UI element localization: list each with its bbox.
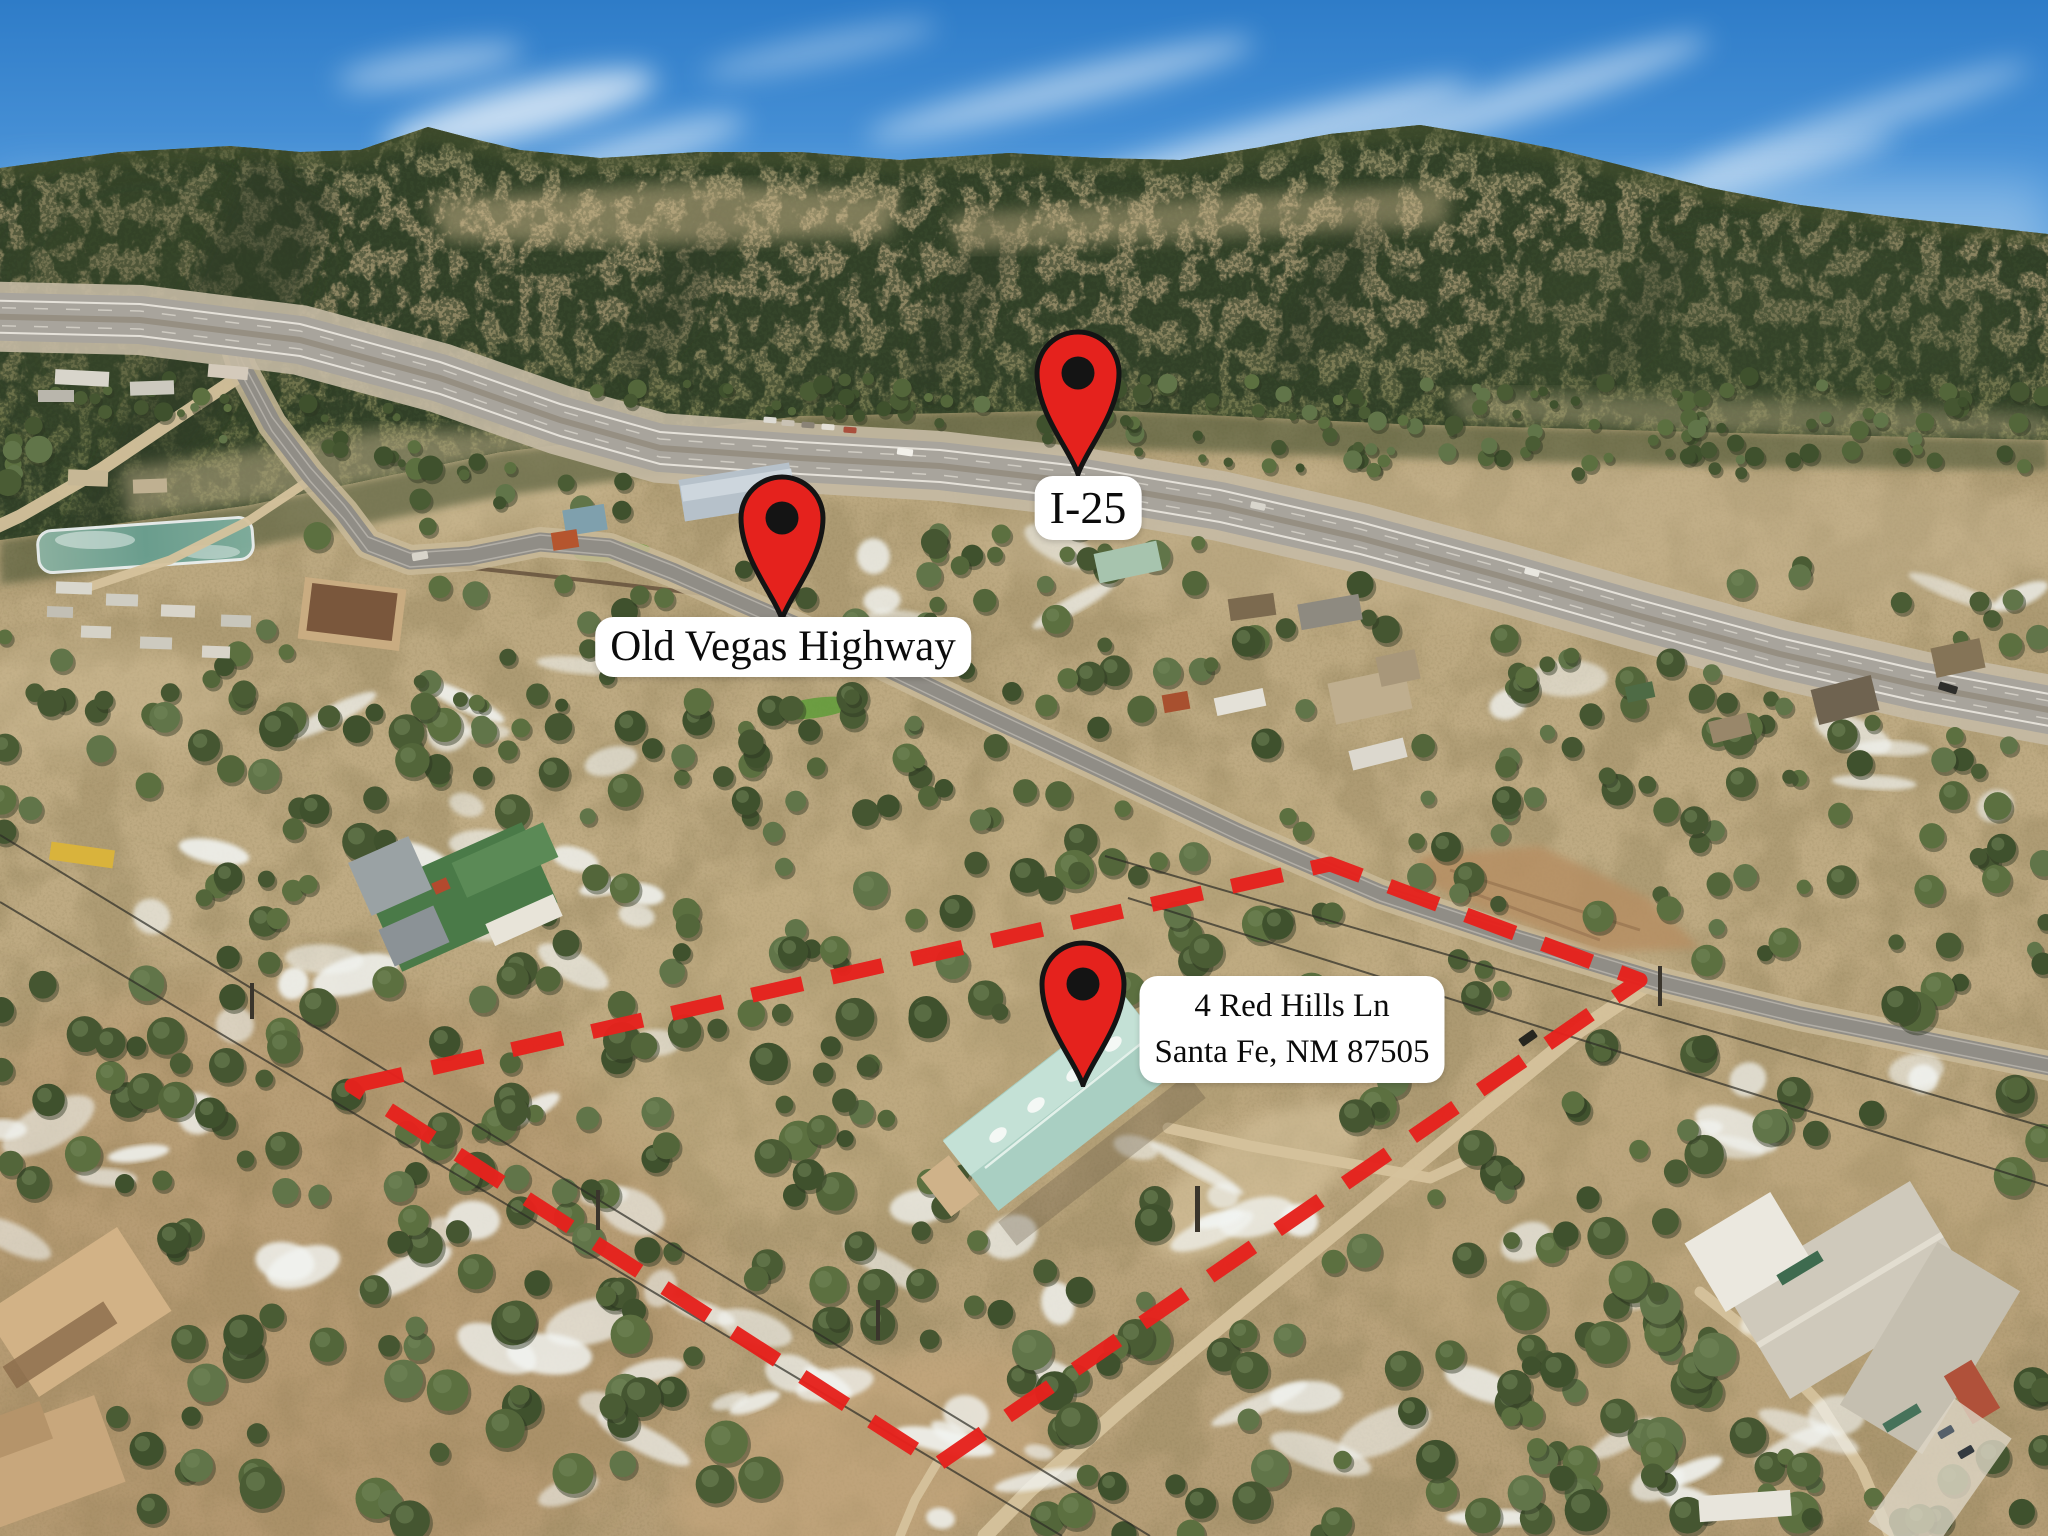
- juniper-tree-highlight: [945, 899, 960, 914]
- juniper-tree-highlight: [627, 1382, 645, 1400]
- juniper-tree: [1497, 384, 1514, 401]
- juniper-tree-highlight: [673, 1019, 688, 1034]
- property-address-label: 4 Red Hills Ln Santa Fe, NM 87505: [1140, 976, 1445, 1083]
- juniper-tree: [2009, 1499, 2035, 1525]
- juniper-tree: [1068, 862, 1087, 881]
- juniper-tree: [912, 1221, 931, 1240]
- juniper-tree: [1204, 657, 1218, 671]
- juniper-tree-highlight: [1605, 1403, 1621, 1419]
- juniper-tree: [1816, 379, 1828, 391]
- juniper-tree: [934, 418, 944, 428]
- building: [140, 636, 172, 649]
- juniper-tree-highlight: [1190, 1492, 1204, 1506]
- building: [221, 614, 251, 627]
- juniper-tree: [2005, 1077, 2028, 1100]
- juniper-tree: [387, 1231, 410, 1254]
- juniper-tree: [1060, 547, 1075, 562]
- juniper-tree: [1038, 876, 1063, 901]
- juniper-tree: [1098, 848, 1126, 876]
- juniper-tree: [1571, 467, 1585, 481]
- juniper-tree: [631, 1033, 657, 1059]
- juniper-tree-highlight: [1123, 1324, 1139, 1340]
- juniper-tree-highlight: [396, 1505, 414, 1523]
- juniper-tree-highlight: [388, 1175, 402, 1189]
- vehicle: [781, 420, 794, 427]
- juniper-tree-highlight: [336, 1083, 350, 1097]
- juniper-tree: [283, 818, 305, 840]
- juniper-tree-highlight: [811, 1119, 824, 1132]
- juniper-tree-highlight: [502, 1305, 520, 1323]
- juniper-tree: [852, 799, 879, 826]
- juniper-tree: [723, 384, 733, 394]
- juniper-tree: [37, 690, 64, 717]
- juniper-tree-highlight: [141, 1497, 155, 1511]
- juniper-tree: [2009, 413, 2029, 433]
- juniper-tree: [924, 393, 933, 402]
- juniper-tree: [1896, 448, 1912, 464]
- juniper-tree: [1576, 1186, 1599, 1209]
- juniper-tree: [1366, 463, 1381, 478]
- juniper-tree: [684, 688, 712, 716]
- juniper-tree-highlight: [1759, 1456, 1773, 1470]
- juniper-tree-highlight: [2033, 1439, 2047, 1453]
- juniper-tree-highlight: [463, 1258, 479, 1274]
- juniper-tree: [920, 1329, 940, 1349]
- juniper-tree: [498, 740, 518, 760]
- juniper-tree: [2010, 382, 2030, 402]
- juniper-tree-highlight: [1104, 659, 1118, 673]
- juniper-tree-highlight: [364, 1279, 377, 1292]
- juniper-tree: [1333, 395, 1343, 405]
- juniper-tree-highlight: [1943, 785, 1956, 798]
- juniper-tree: [115, 1174, 134, 1193]
- juniper-tree: [1891, 592, 1912, 613]
- juniper-tree: [951, 556, 970, 575]
- juniper-tree-highlight: [253, 763, 267, 777]
- juniper-tree-highlight: [99, 1031, 113, 1045]
- juniper-tree: [813, 1062, 834, 1083]
- juniper-tree: [1970, 592, 1990, 612]
- juniper-tree-highlight: [1018, 1335, 1036, 1353]
- juniper-tree: [398, 459, 406, 467]
- juniper-tree: [1066, 1277, 1093, 1304]
- juniper-tree: [813, 375, 832, 394]
- juniper-tree-highlight: [1247, 910, 1264, 927]
- vehicle: [843, 427, 856, 434]
- juniper-tree-highlight: [193, 1368, 210, 1385]
- juniper-tree-highlight: [70, 1140, 86, 1156]
- juniper-tree-highlight: [1463, 1135, 1479, 1151]
- juniper-tree: [707, 1019, 727, 1039]
- juniper-tree-highlight: [1495, 628, 1508, 641]
- juniper-tree-highlight: [100, 1065, 113, 1078]
- juniper-tree: [1689, 684, 1715, 710]
- juniper-tree: [1365, 443, 1377, 455]
- juniper-tree: [1908, 432, 1923, 447]
- juniper-tree: [558, 475, 575, 492]
- juniper-tree: [1716, 423, 1726, 433]
- juniper-tree: [1512, 410, 1521, 419]
- juniper-tree-highlight: [501, 967, 516, 982]
- juniper-tree: [844, 689, 860, 705]
- juniper-tree: [987, 547, 1003, 563]
- juniper-tree-highlight: [616, 1320, 634, 1338]
- juniper-tree-highlight: [1061, 1407, 1080, 1426]
- juniper-tree: [1348, 389, 1363, 404]
- juniper-tree-highlight: [185, 1453, 200, 1468]
- juniper-tree: [237, 1150, 255, 1168]
- juniper-tree: [839, 374, 852, 387]
- juniper-tree: [1997, 445, 2014, 462]
- juniper-tree: [1333, 1451, 1351, 1469]
- juniper-tree: [429, 576, 451, 598]
- juniper-tree-highlight: [1326, 1511, 1340, 1525]
- juniper-tree: [683, 1346, 703, 1366]
- juniper-tree-highlight: [1696, 949, 1710, 963]
- juniper-tree: [929, 597, 944, 612]
- juniper-tree: [1971, 764, 1986, 779]
- juniper-tree-highlight: [501, 1099, 515, 1113]
- juniper-tree: [1360, 610, 1377, 627]
- juniper-tree: [1140, 374, 1151, 385]
- juniper-tree: [1407, 863, 1434, 890]
- juniper-tree: [1562, 737, 1583, 758]
- juniper-tree: [1343, 450, 1362, 469]
- building: [133, 478, 167, 493]
- juniper-tree: [1411, 734, 1435, 758]
- juniper-tree: [1540, 725, 1555, 740]
- juniper-tree-highlight: [265, 715, 281, 731]
- juniper-tree-highlight: [1470, 1502, 1486, 1518]
- juniper-tree: [893, 379, 912, 398]
- building: [130, 380, 174, 396]
- juniper-tree: [671, 744, 695, 768]
- building: [202, 646, 230, 659]
- juniper-tree: [1736, 455, 1746, 465]
- juniper-tree: [333, 442, 349, 458]
- juniper-tree: [1599, 767, 1616, 784]
- juniper-tree: [1481, 438, 1497, 454]
- juniper-tree: [1347, 571, 1374, 598]
- juniper-tree-highlight: [661, 1380, 675, 1394]
- juniper-tree: [1596, 374, 1614, 392]
- juniper-tree: [182, 1407, 201, 1426]
- juniper-tree: [967, 1230, 988, 1251]
- juniper-tree-highlight: [135, 1436, 150, 1451]
- juniper-tree: [1603, 453, 1613, 463]
- juniper-tree: [788, 407, 797, 416]
- juniper-tree: [1318, 417, 1330, 429]
- juniper-tree: [1193, 431, 1203, 441]
- juniper-tree-highlight: [1079, 665, 1092, 678]
- juniper-tree: [1735, 467, 1747, 479]
- juniper-tree-highlight: [1587, 905, 1601, 919]
- juniper-tree-highlight: [500, 799, 516, 815]
- juniper-tree: [1936, 933, 1961, 958]
- juniper-tree: [1782, 770, 1796, 784]
- map-pin-i25: [1028, 326, 1128, 476]
- juniper-tree: [1096, 1352, 1120, 1376]
- juniper-tree: [217, 946, 240, 969]
- building: [38, 390, 74, 402]
- juniper-tree-highlight: [1041, 1376, 1059, 1394]
- juniper-tree: [3, 441, 22, 460]
- juniper-tree-highlight: [1267, 912, 1281, 926]
- juniper-tree: [612, 501, 631, 520]
- juniper-tree: [857, 1056, 877, 1076]
- juniper-tree-highlight: [163, 1086, 179, 1102]
- building: [81, 625, 111, 638]
- juniper-tree: [219, 394, 229, 404]
- juniper-tree: [905, 909, 925, 929]
- juniper-tree-highlight: [154, 706, 168, 720]
- juniper-tree: [1873, 413, 1888, 428]
- juniper-tree-highlight: [849, 1235, 862, 1248]
- juniper-tree-highlight: [1236, 1356, 1253, 1373]
- juniper-tree: [446, 1220, 469, 1243]
- juniper-tree-highlight: [646, 1101, 660, 1115]
- juniper-tree: [1847, 750, 1873, 776]
- juniper-tree-highlight: [1212, 1342, 1227, 1357]
- juniper-tree: [1652, 1208, 1679, 1235]
- juniper-tree-highlight: [1390, 1355, 1406, 1371]
- juniper-tree-highlight: [1571, 1494, 1590, 1513]
- juniper-tree: [469, 986, 496, 1013]
- juniper-tree: [853, 410, 865, 422]
- juniper-tree: [1638, 776, 1656, 794]
- vehicle: [801, 422, 814, 429]
- juniper-tree: [1408, 833, 1425, 850]
- juniper-tree-highlight: [1035, 1506, 1051, 1522]
- juniper-tree: [1302, 405, 1318, 421]
- juniper-tree: [1703, 664, 1721, 682]
- juniper-tree: [1398, 415, 1409, 426]
- juniper-tree: [1491, 824, 1510, 843]
- juniper-tree-highlight: [348, 828, 365, 845]
- juniper-tree: [1709, 919, 1726, 936]
- juniper-tree: [1033, 1259, 1057, 1283]
- juniper-tree: [554, 575, 573, 594]
- juniper-tree: [1087, 717, 1109, 739]
- juniper-tree: [1802, 1508, 1821, 1527]
- juniper-tree-highlight: [1015, 862, 1031, 878]
- juniper-tree-highlight: [229, 1320, 247, 1338]
- juniper-tree: [916, 562, 941, 587]
- juniper-tree: [1819, 411, 1832, 424]
- juniper-tree: [1490, 896, 1506, 912]
- road-label-i25: I-25: [1035, 476, 1142, 540]
- juniper-tree: [738, 1000, 765, 1027]
- juniper-tree-highlight: [1502, 1374, 1517, 1389]
- juniper-tree: [363, 786, 387, 810]
- juniper-tree: [630, 586, 649, 605]
- juniper-tree: [823, 407, 834, 418]
- juniper-tree-highlight: [619, 714, 633, 728]
- juniper-tree: [196, 889, 213, 906]
- juniper-tree: [862, 373, 874, 385]
- juniper-tree: [1653, 797, 1679, 823]
- juniper-tree-highlight: [1986, 868, 1999, 881]
- juniper-tree: [94, 691, 113, 710]
- road-label-old-vegas-highway-text: Old Vegas Highway: [610, 620, 956, 674]
- juniper-tree-highlight: [133, 1078, 149, 1094]
- juniper-tree: [86, 735, 114, 763]
- road-label-old-vegas-highway: Old Vegas Highway: [595, 617, 971, 677]
- juniper-tree: [832, 1089, 856, 1113]
- aerial-photo: I-25 Old Vegas Highway 4 Red Hills Ln Sa…: [0, 0, 2048, 1536]
- juniper-tree: [535, 966, 560, 991]
- juniper-tree-highlight: [315, 1332, 330, 1347]
- juniper-tree: [590, 384, 604, 398]
- juniper-tree-highlight: [1661, 652, 1674, 665]
- juniper-tree-highlight: [858, 876, 874, 892]
- juniper-tree-highlight: [1646, 1442, 1662, 1458]
- juniper-tree: [608, 991, 636, 1019]
- juniper-tree-highlight: [1422, 1445, 1440, 1463]
- juniper-tree: [1525, 436, 1540, 451]
- juniper-tree: [408, 440, 421, 453]
- juniper-tree: [1657, 419, 1673, 435]
- juniper-tree: [1717, 693, 1738, 714]
- juniper-tree: [74, 391, 88, 405]
- vehicle: [821, 424, 834, 431]
- juniper-tree-highlight: [246, 1472, 265, 1491]
- juniper-tree-highlight: [760, 1143, 776, 1159]
- juniper-tree: [1806, 419, 1817, 430]
- juniper-tree: [303, 522, 331, 550]
- juniper-tree: [614, 473, 632, 491]
- juniper-tree: [299, 395, 318, 414]
- juniper-tree-highlight: [1233, 1323, 1246, 1336]
- juniper-tree-highlight: [432, 1116, 447, 1131]
- juniper-tree: [1378, 455, 1391, 468]
- juniper-tree-highlight: [911, 1273, 925, 1287]
- juniper-tree: [1530, 390, 1538, 398]
- juniper-tree-highlight: [1457, 1246, 1471, 1260]
- juniper-tree: [136, 772, 162, 798]
- juniper-tree: [1045, 781, 1071, 807]
- juniper-tree: [1527, 1438, 1547, 1458]
- juniper-tree-highlight: [824, 940, 837, 953]
- map-pin-old-vegas-highway: [732, 471, 832, 621]
- juniper-tree-highlight: [1591, 1326, 1610, 1345]
- juniper-tree-highlight: [782, 940, 796, 954]
- juniper-tree-highlight: [1194, 938, 1210, 954]
- juniper-tree-highlight: [1684, 810, 1697, 823]
- juniper-tree: [1296, 463, 1305, 472]
- juniper-tree: [674, 770, 690, 786]
- juniper-tree-highlight: [1436, 836, 1449, 849]
- juniper-tree: [826, 1308, 848, 1330]
- juniper-tree-highlight: [403, 1209, 417, 1223]
- juniper-tree: [582, 864, 608, 890]
- juniper-tree: [1387, 447, 1395, 455]
- juniper-tree: [232, 680, 256, 704]
- juniper-tree: [411, 693, 438, 720]
- juniper-tree: [1224, 457, 1233, 466]
- juniper-tree: [1785, 452, 1801, 468]
- vehicle: [763, 417, 776, 424]
- juniper-tree: [1182, 571, 1207, 596]
- juniper-tree-highlight: [543, 761, 557, 775]
- juniper-tree-highlight: [1236, 630, 1250, 644]
- juniper-tree: [272, 1178, 298, 1204]
- juniper-tree-highlight: [1140, 1209, 1157, 1226]
- juniper-tree: [1946, 727, 1964, 745]
- juniper-tree-highlight: [270, 1136, 285, 1151]
- juniper-tree-highlight: [153, 1022, 170, 1039]
- juniper-tree-highlight: [1046, 608, 1059, 621]
- juniper-tree: [1864, 715, 1880, 731]
- juniper-tree: [676, 914, 700, 938]
- juniper-tree-highlight: [433, 1375, 452, 1394]
- juniper-tree-highlight: [1352, 1238, 1367, 1253]
- juniper-tree-highlight: [1063, 1497, 1079, 1513]
- juniper-tree: [988, 1300, 1014, 1326]
- building: [161, 604, 195, 617]
- juniper-tree: [1252, 404, 1265, 417]
- juniper-tree: [974, 396, 991, 413]
- juniper-tree: [1421, 791, 1436, 806]
- juniper-tree: [1191, 536, 1205, 550]
- juniper-tree-highlight: [558, 1206, 572, 1220]
- juniper-tree: [383, 403, 394, 414]
- juniper-tree: [776, 1096, 794, 1114]
- juniper-tree: [25, 417, 43, 435]
- juniper-tree: [343, 715, 371, 743]
- juniper-tree: [308, 1185, 329, 1206]
- juniper-tree: [192, 388, 210, 406]
- juniper-tree: [624, 394, 638, 408]
- juniper-tree: [499, 649, 516, 666]
- juniper-tree-highlight: [1615, 1265, 1633, 1283]
- juniper-tree: [654, 588, 674, 608]
- juniper-tree: [177, 409, 185, 417]
- juniper-tree-highlight: [1183, 846, 1196, 859]
- juniper-tree: [1438, 443, 1456, 461]
- juniper-tree: [555, 699, 568, 712]
- juniper-tree: [247, 1423, 267, 1443]
- juniper-tree: [524, 1270, 550, 1296]
- juniper-tree: [1692, 1035, 1716, 1059]
- juniper-tree-highlight: [162, 1227, 176, 1241]
- juniper-tree: [19, 797, 43, 821]
- juniper-tree-highlight: [1102, 1475, 1115, 1488]
- juniper-tree: [1842, 441, 1861, 460]
- juniper-tree: [378, 1335, 400, 1357]
- juniper-tree: [1472, 400, 1488, 416]
- juniper-tree: [258, 871, 275, 888]
- juniper-tree: [798, 719, 820, 741]
- juniper-tree: [1931, 747, 1956, 772]
- juniper-tree: [1522, 1356, 1541, 1375]
- juniper-tree: [738, 729, 763, 754]
- juniper-tree: [1888, 934, 1903, 949]
- juniper-tree: [1158, 374, 1178, 394]
- juniper-tree: [1647, 1282, 1666, 1301]
- juniper-tree: [1549, 1465, 1574, 1490]
- juniper-tree: [921, 529, 947, 555]
- juniper-tree-highlight: [609, 1027, 626, 1044]
- juniper-tree-highlight: [200, 1101, 214, 1115]
- juniper-tree: [469, 695, 485, 711]
- juniper-tree: [1828, 803, 1850, 825]
- juniper-tree-highlight: [1540, 1237, 1554, 1251]
- juniper-tree: [1680, 448, 1696, 464]
- juniper-tree: [1322, 1250, 1346, 1274]
- juniper-tree: [152, 1171, 172, 1191]
- juniper-tree: [267, 908, 288, 929]
